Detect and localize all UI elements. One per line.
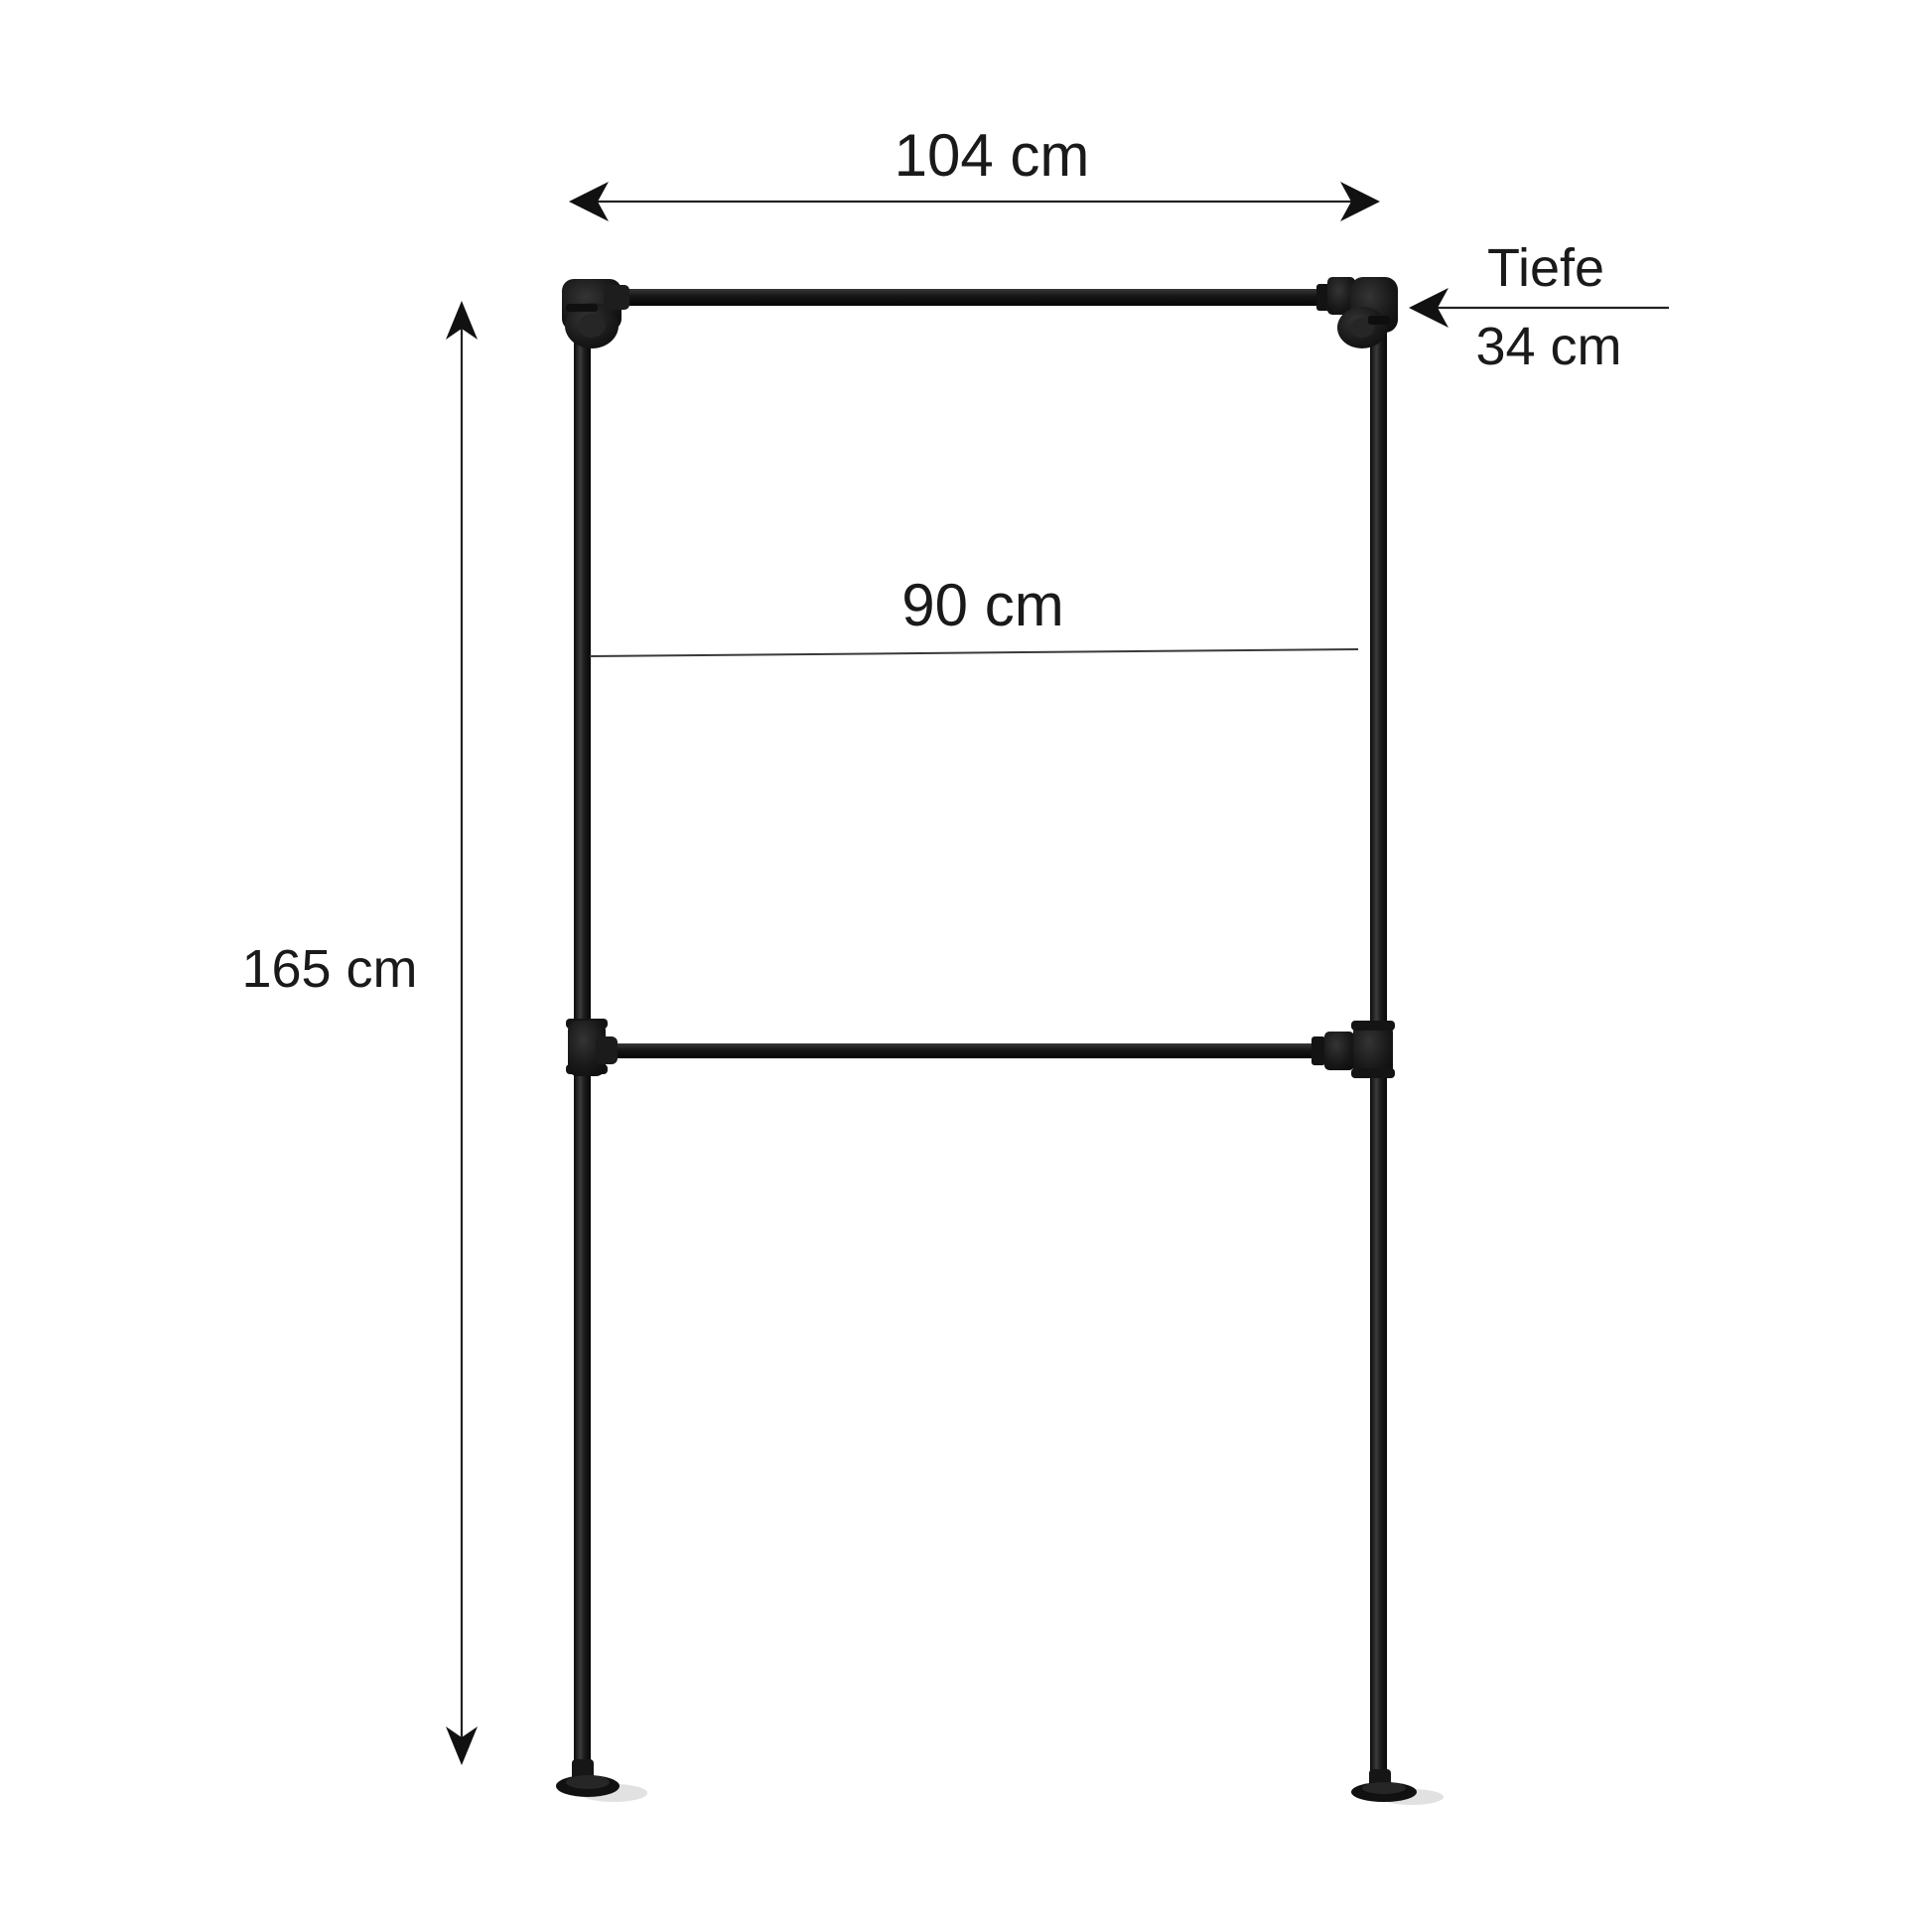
middle-right-tee-fitting bbox=[1311, 1021, 1395, 1078]
top-left-elbow-fitting bbox=[562, 279, 629, 348]
middle-rail-pipe bbox=[604, 1043, 1360, 1058]
inner-width-line bbox=[590, 649, 1358, 656]
outer-width-dimension: 104 cm bbox=[569, 122, 1380, 221]
inner-width-dimension: 90 cm bbox=[590, 572, 1358, 656]
dimension-annotations: 104 cm 165 cm 90 cm Tiefe 34 cm bbox=[241, 122, 1669, 1765]
clothes-rack bbox=[556, 277, 1444, 1805]
depth-word-label: Tiefe bbox=[1487, 238, 1604, 298]
diagram-canvas: 104 cm 165 cm 90 cm Tiefe 34 cm bbox=[0, 0, 1932, 1932]
outer-width-label: 104 cm bbox=[895, 122, 1090, 189]
depth-value-label: 34 cm bbox=[1475, 317, 1621, 376]
left-foot-flange bbox=[556, 1759, 620, 1797]
top-rail-pipe bbox=[594, 289, 1368, 306]
middle-left-tee-fitting bbox=[566, 1019, 618, 1076]
depth-dimension: Tiefe 34 cm bbox=[1409, 238, 1669, 376]
height-label: 165 cm bbox=[241, 939, 417, 999]
clothes-rack-dimension-diagram: 104 cm 165 cm 90 cm Tiefe 34 cm bbox=[0, 0, 1932, 1932]
height-dimension: 165 cm bbox=[241, 301, 478, 1765]
inner-width-label: 90 cm bbox=[901, 572, 1063, 638]
right-foot-flange bbox=[1351, 1769, 1417, 1802]
